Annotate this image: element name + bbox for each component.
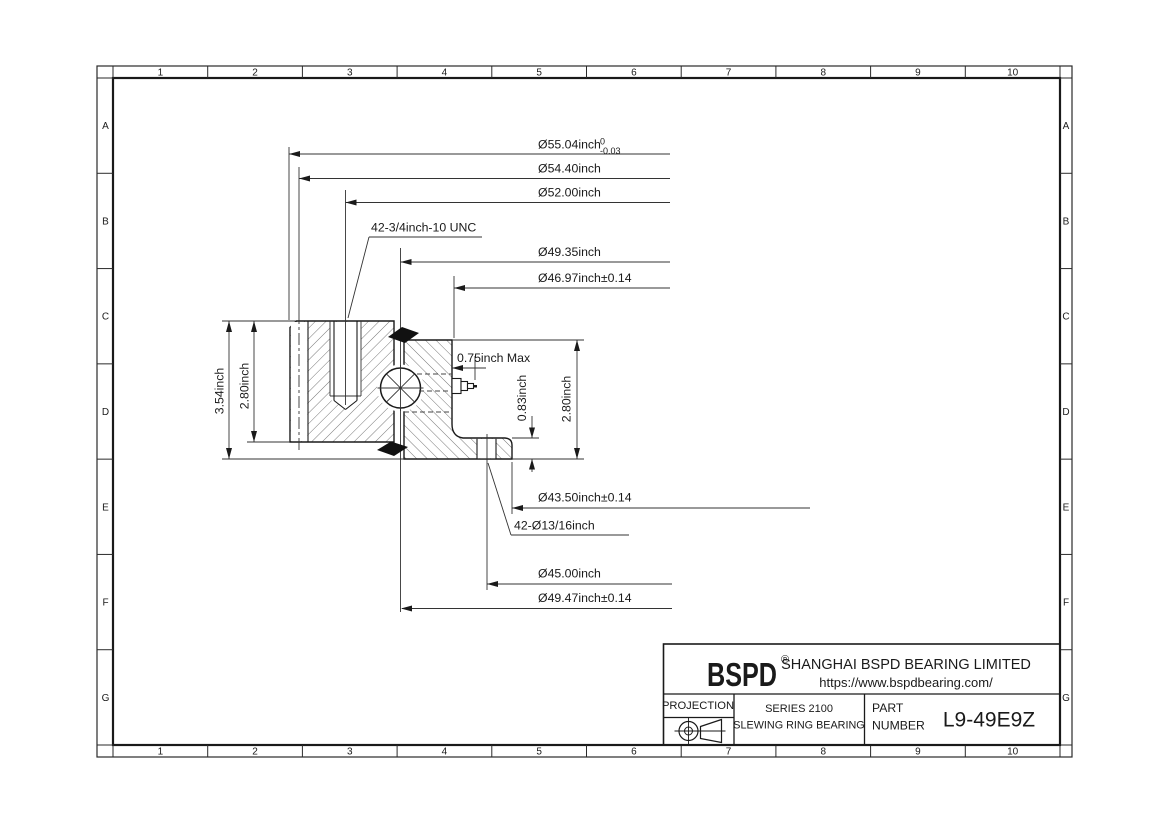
mounting-hole bbox=[477, 439, 496, 459]
grid-col-label: 2 bbox=[252, 747, 258, 758]
grid-row-label: G bbox=[1062, 693, 1070, 704]
grid-row-label: D bbox=[102, 407, 109, 418]
dim-bolt-circle-outer-label: Ø52.00inch bbox=[538, 186, 601, 200]
dim-bore-upper-label: Ø46.97inch±0.14 bbox=[538, 271, 632, 285]
grid-row-label: E bbox=[1063, 502, 1070, 513]
grid-row-label: F bbox=[102, 598, 108, 609]
dim-raceway-lower-label: Ø49.47inch±0.14 bbox=[538, 591, 632, 605]
grid-row-label: B bbox=[1063, 216, 1070, 227]
grid-row-label: A bbox=[102, 121, 109, 132]
dim-height-inner-ring-label: 2.80inch bbox=[560, 376, 574, 423]
grid-col-label: 10 bbox=[1007, 68, 1019, 79]
dim-flange-height-label: 0.83inch bbox=[515, 375, 529, 422]
grid-col-label: 10 bbox=[1007, 747, 1019, 758]
dim-od-main-label: Ø55.04inch bbox=[538, 138, 601, 152]
series-line1: SERIES 2100 bbox=[765, 703, 833, 715]
grid-row-label: F bbox=[1063, 598, 1069, 609]
grid-col-label: 7 bbox=[726, 68, 732, 79]
dim-raceway-upper-label: Ø49.35inch bbox=[538, 245, 601, 259]
grid-col-label: 7 bbox=[726, 747, 732, 758]
grid-row-label: E bbox=[102, 502, 109, 513]
grid-col-label: 6 bbox=[631, 68, 637, 79]
dim-height-overall-label: 3.54inch bbox=[213, 368, 227, 415]
part-number-label-line2: NUMBER bbox=[872, 719, 925, 733]
dim-thread-label: 42-3/4inch-10 UNC bbox=[371, 221, 476, 235]
company-website: https://www.bspdbearing.com/ bbox=[819, 675, 993, 690]
part-number-value: L9-49E9Z bbox=[943, 709, 1035, 732]
dim-od-step-label: Ø54.40inch bbox=[538, 162, 601, 176]
dim-height-outer-ring-label: 2.80inch bbox=[238, 363, 252, 410]
grid-col-label: 5 bbox=[536, 68, 542, 79]
grid-row-label: B bbox=[102, 216, 109, 227]
grid-row-label: C bbox=[1062, 312, 1069, 323]
grease-fitting-icon bbox=[452, 379, 477, 394]
grid-col-label: 3 bbox=[347, 747, 353, 758]
grid-row-label: C bbox=[102, 312, 109, 323]
company-name: SHANGHAI BSPD BEARING LIMITED bbox=[781, 657, 1031, 673]
grid-col-label: 3 bbox=[347, 68, 353, 79]
grid-col-label: 4 bbox=[442, 747, 448, 758]
grid-col-label: 5 bbox=[536, 747, 542, 758]
grid-row-label: D bbox=[1062, 407, 1069, 418]
dim-mounting-holes-label: 42-Ø13/16inch bbox=[514, 519, 595, 533]
grid-col-label: 8 bbox=[820, 747, 826, 758]
grid-col-label: 6 bbox=[631, 747, 637, 758]
grid-row-label: G bbox=[102, 693, 110, 704]
grid-col-label: 9 bbox=[915, 747, 921, 758]
grid-col-label: 8 bbox=[820, 68, 826, 79]
grid-row-label: A bbox=[1063, 121, 1070, 132]
dim-flange-bore-label: Ø43.50inch±0.14 bbox=[538, 491, 632, 505]
grid-col-label: 2 bbox=[252, 68, 258, 79]
grid-col-label: 1 bbox=[158, 747, 164, 758]
engineering-drawing: 1122334455667788991010AABBCCDDEEFFGG bbox=[0, 0, 1170, 827]
series-line2: SLEWING RING BEARING bbox=[733, 720, 864, 732]
part-number-label-line1: PART bbox=[872, 701, 904, 715]
projection-label: PROJECTION bbox=[662, 700, 734, 712]
dim-grease-protrusion-label: 0.75inch Max bbox=[457, 351, 531, 365]
grid-col-label: 4 bbox=[442, 68, 448, 79]
dim-od-tol-sub: -0.03 bbox=[600, 146, 621, 156]
title-block: BSPD ® SHANGHAI BSPD BEARING LIMITED htt… bbox=[662, 644, 1060, 745]
grid-col-label: 9 bbox=[915, 68, 921, 79]
dim-od-tol-sup: 0 bbox=[600, 137, 605, 147]
first-angle-projection-icon bbox=[675, 718, 726, 745]
dim-bolt-circle-inner-label: Ø45.00inch bbox=[538, 567, 601, 581]
grid-col-label: 1 bbox=[158, 68, 164, 79]
company-logo: BSPD bbox=[707, 656, 777, 693]
